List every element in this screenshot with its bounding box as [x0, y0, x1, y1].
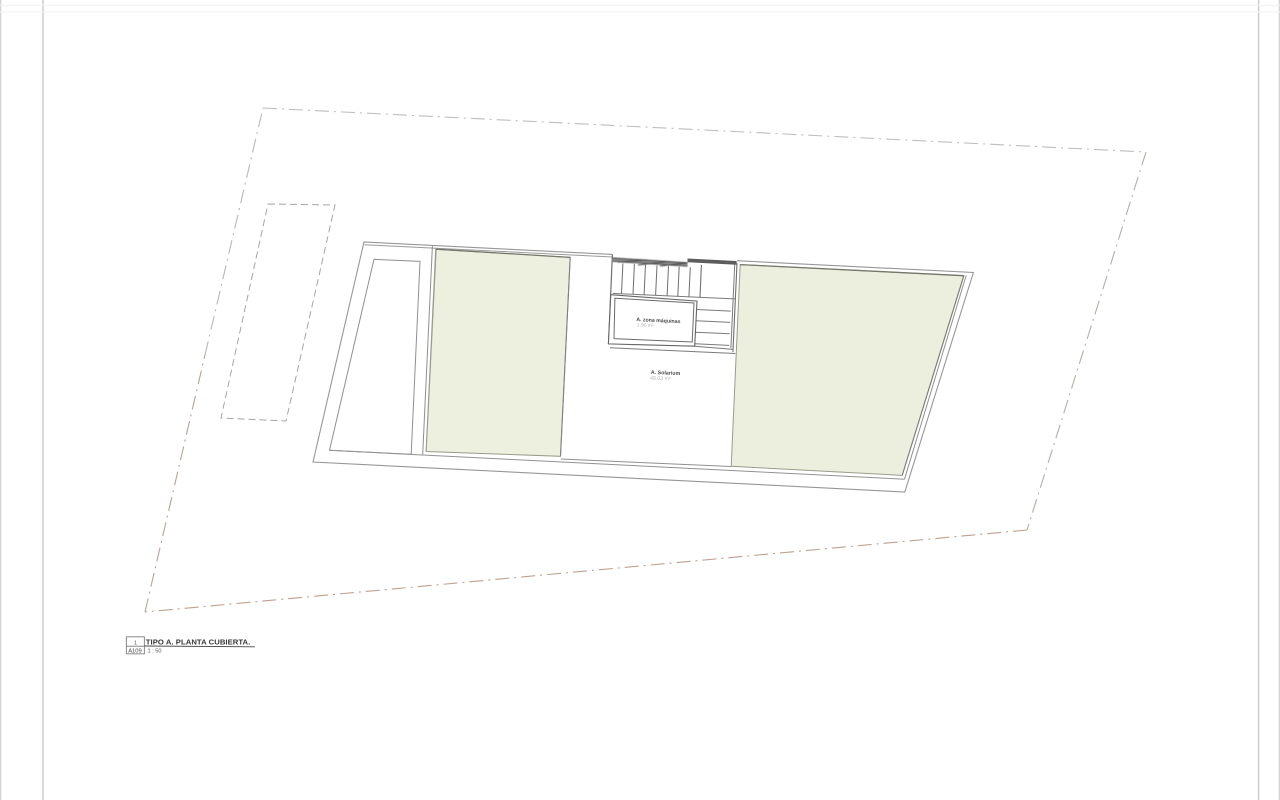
svg-text:1.90 m²: 1.90 m² — [637, 322, 655, 329]
svg-text:1 : 50: 1 : 50 — [148, 648, 162, 654]
svg-text:1: 1 — [134, 640, 137, 646]
svg-text:48.03 m²: 48.03 m² — [650, 376, 671, 383]
svg-text:A109: A109 — [128, 648, 142, 654]
svg-text:TIPO A. PLANTA CUBIERTA.: TIPO A. PLANTA CUBIERTA. — [146, 637, 251, 646]
